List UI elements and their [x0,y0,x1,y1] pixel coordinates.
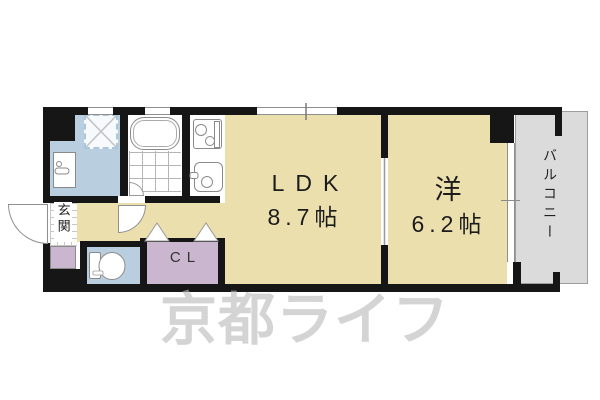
sink-icon [194,162,223,192]
floorplan: LDK 8.7帖 洋 6.2帖 バルコニー 玄関 CL 京都ライフ [0,0,600,400]
western-room-size: 6.2帖 [385,205,513,239]
wall-toilet-top [80,241,147,247]
wall-partition-upper [381,115,388,158]
entrance-label: 玄関 [54,202,72,242]
wall-under-bathroom [145,196,220,203]
stove-icon [193,119,222,149]
wall-closet-top [140,238,225,242]
wall-left-upper [43,107,50,203]
wall-entry-block [50,269,81,292]
wall-toilet-right [140,241,147,288]
wall-toilet-left [80,241,87,288]
western-room-label: 洋 [398,168,498,207]
shoe-cabinet [50,246,76,269]
toilet-tank-icon [89,252,101,279]
pillar-washroom-corner [50,115,75,141]
hallway-floor [77,203,226,242]
window-washroom [88,107,113,115]
window-balcony [507,143,515,262]
vanity-icon [53,152,76,188]
bathtub-inner-line [133,120,177,147]
washing-machine-pan-icon [84,114,118,149]
wall-washroom-bathroom [120,115,128,196]
watermark-text: 京都ライフ [160,274,450,356]
window-ldk [257,107,337,115]
ldk-room-size: 8.7帖 [230,198,380,232]
balcony-wall-stub-bottom-right [553,272,560,284]
pillar-top-right [490,115,514,143]
balcony-label: バルコニー [540,148,560,258]
balcony-wall-stub-top [555,115,562,136]
closet-label: CL [147,249,218,266]
opening-washroom-door [118,196,145,203]
bathtub-icon [130,117,180,150]
wall-bathroom-kitchen [182,115,190,203]
balcony-wall-stub-bottom-left [513,262,521,292]
window-bathroom [145,107,170,115]
ldk-room-label: LDK [230,170,380,197]
entrance-door-swing [8,204,48,244]
